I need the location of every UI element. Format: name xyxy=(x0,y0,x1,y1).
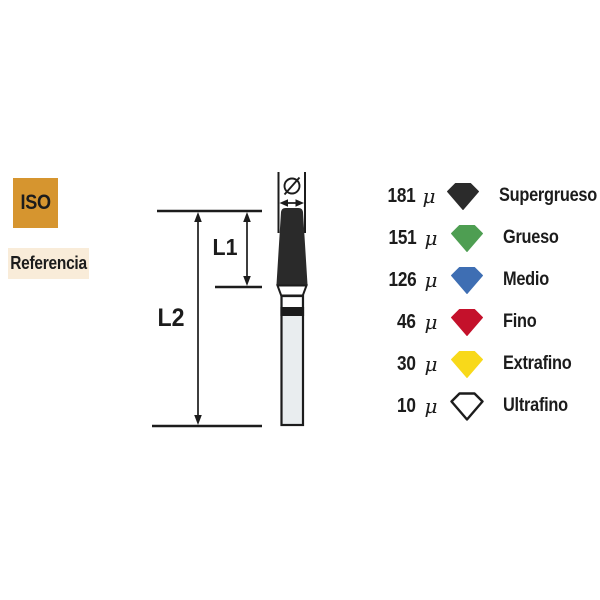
legend-item: 10 μ Ultrafino xyxy=(383,385,600,427)
bur-neck xyxy=(278,286,307,296)
diamond-grit-icon xyxy=(450,350,484,379)
grit-name-label: Grueso xyxy=(503,227,568,249)
l2-label: L2 xyxy=(158,304,185,332)
diameter-arrowhead-left-icon xyxy=(280,199,289,207)
micron-unit-label: μ xyxy=(423,352,439,376)
grit-size-value: 30 xyxy=(383,353,416,376)
grit-size-value: 46 xyxy=(383,311,416,334)
product-diagram-page: ISO Referencia L2 L1 xyxy=(0,0,600,600)
diameter-symbol-icon xyxy=(285,178,300,195)
grit-name-label: Fino xyxy=(503,311,542,333)
diameter-arrowhead-right-icon xyxy=(296,199,305,207)
grit-legend: 181 μ Supergrueso 151 μ Grueso 126 μ Med… xyxy=(383,175,600,427)
legend-item: 30 μ Extrafino xyxy=(383,343,600,385)
grit-size-value: 10 xyxy=(383,395,416,418)
l2-arrowhead-up-icon xyxy=(194,212,202,222)
diamond-grit-icon xyxy=(450,266,484,295)
l1-arrowhead-down-icon xyxy=(243,276,251,286)
grit-name-label: Extrafino xyxy=(503,353,583,375)
micron-unit-label: μ xyxy=(422,184,435,208)
diamond-grit-icon xyxy=(450,308,484,337)
grit-name-label: Supergrueso xyxy=(499,185,600,207)
grit-name-label: Medio xyxy=(503,269,556,291)
diamond-grit-icon xyxy=(450,392,484,421)
grit-name-label: Ultrafino xyxy=(503,395,578,417)
legend-item: 151 μ Grueso xyxy=(383,217,600,259)
l1-label: L1 xyxy=(213,234,238,260)
micron-unit-label: μ xyxy=(423,310,439,334)
legend-item: 126 μ Medio xyxy=(383,259,600,301)
l2-arrowhead-down-icon xyxy=(194,415,202,425)
legend-item: 46 μ Fino xyxy=(383,301,600,343)
diamond-grit-icon xyxy=(446,182,480,211)
l1-arrowhead-up-icon xyxy=(243,212,251,222)
micron-unit-label: μ xyxy=(423,268,439,292)
micron-unit-label: μ xyxy=(423,394,439,418)
bur-collar-band xyxy=(280,307,304,316)
bur-shank-white-band xyxy=(283,298,302,308)
bur-working-tip xyxy=(277,209,307,285)
grit-size-value: 151 xyxy=(383,227,416,250)
grit-size-value: 126 xyxy=(383,269,416,292)
diamond-grit-icon xyxy=(450,224,484,253)
grit-size-value: 181 xyxy=(383,185,415,208)
legend-item: 181 μ Supergrueso xyxy=(383,175,600,217)
micron-unit-label: μ xyxy=(423,226,439,250)
